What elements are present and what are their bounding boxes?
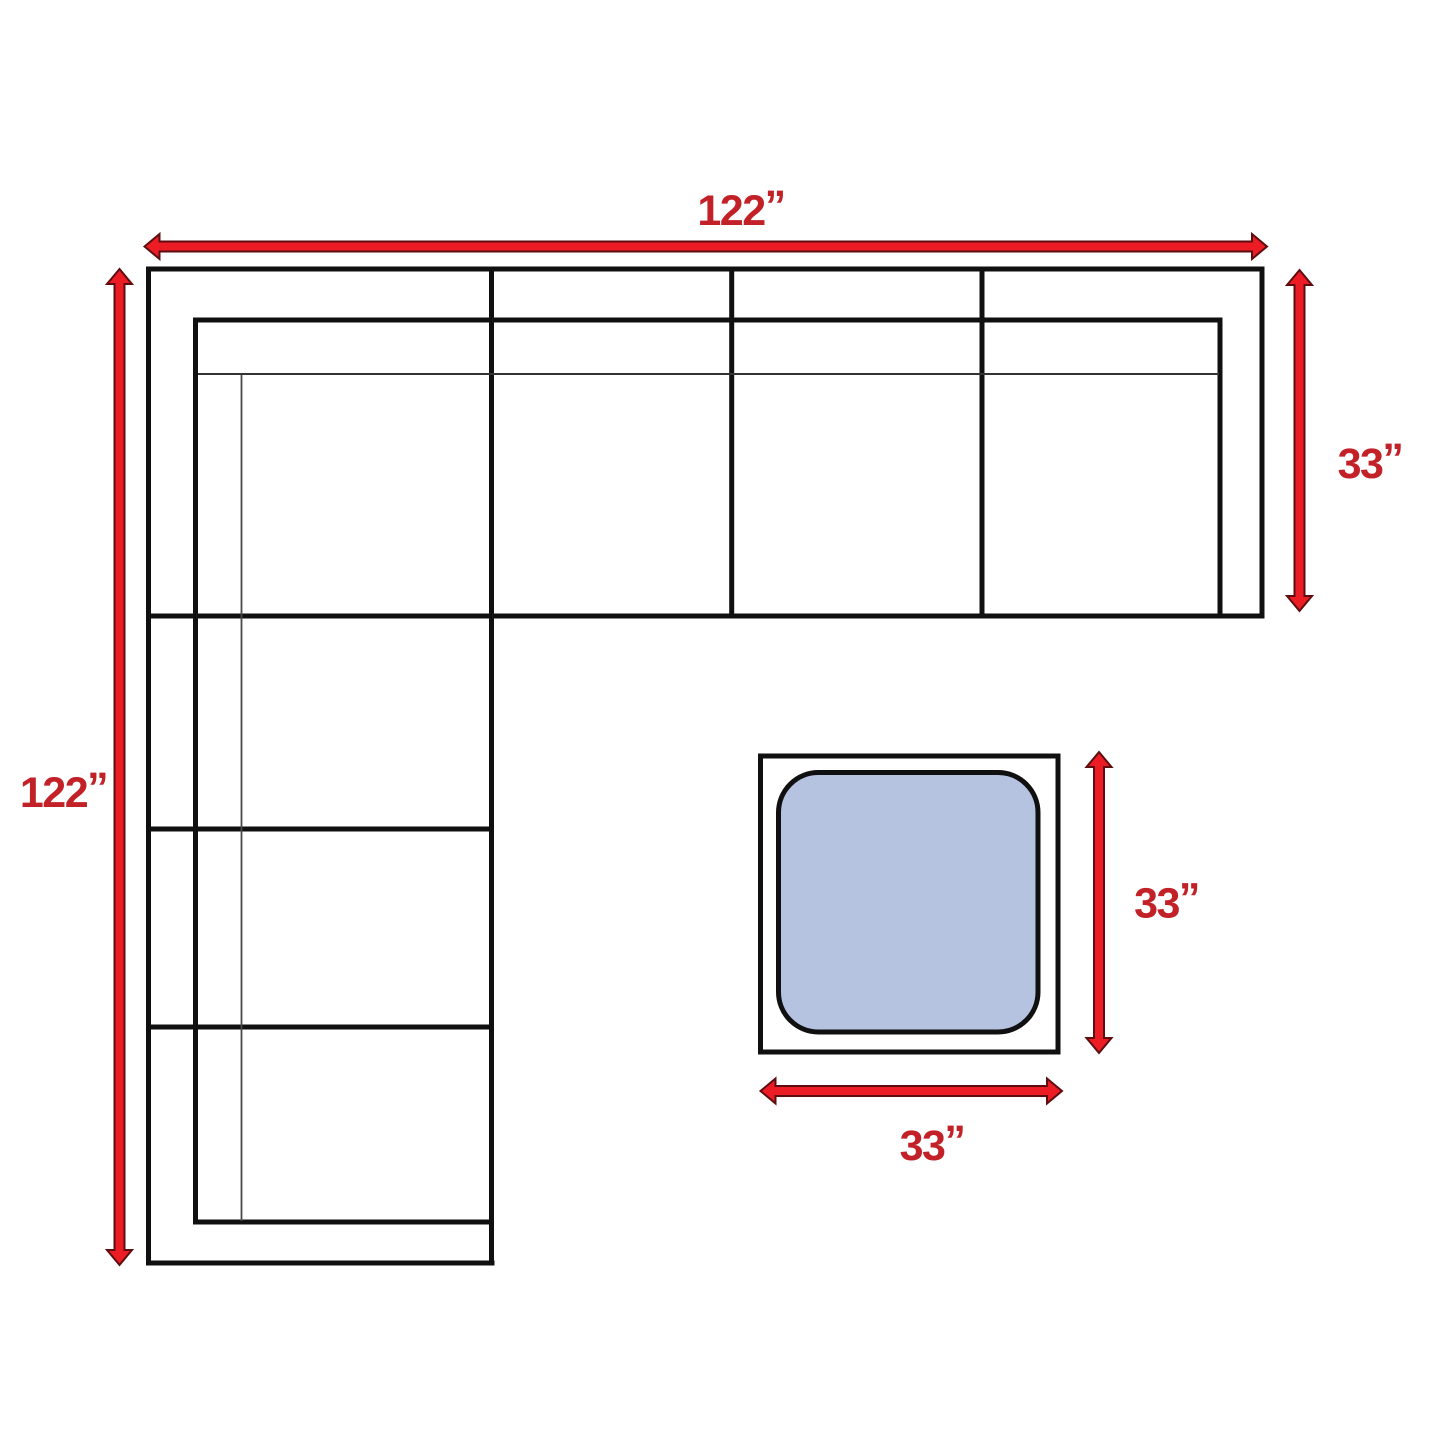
svg-text:33”: 33” (1134, 875, 1199, 928)
svg-text:33”: 33” (1338, 435, 1403, 488)
svg-text:33”: 33” (900, 1117, 965, 1170)
svg-text:122”: 122” (20, 764, 107, 817)
svg-text:122”: 122” (697, 182, 784, 235)
